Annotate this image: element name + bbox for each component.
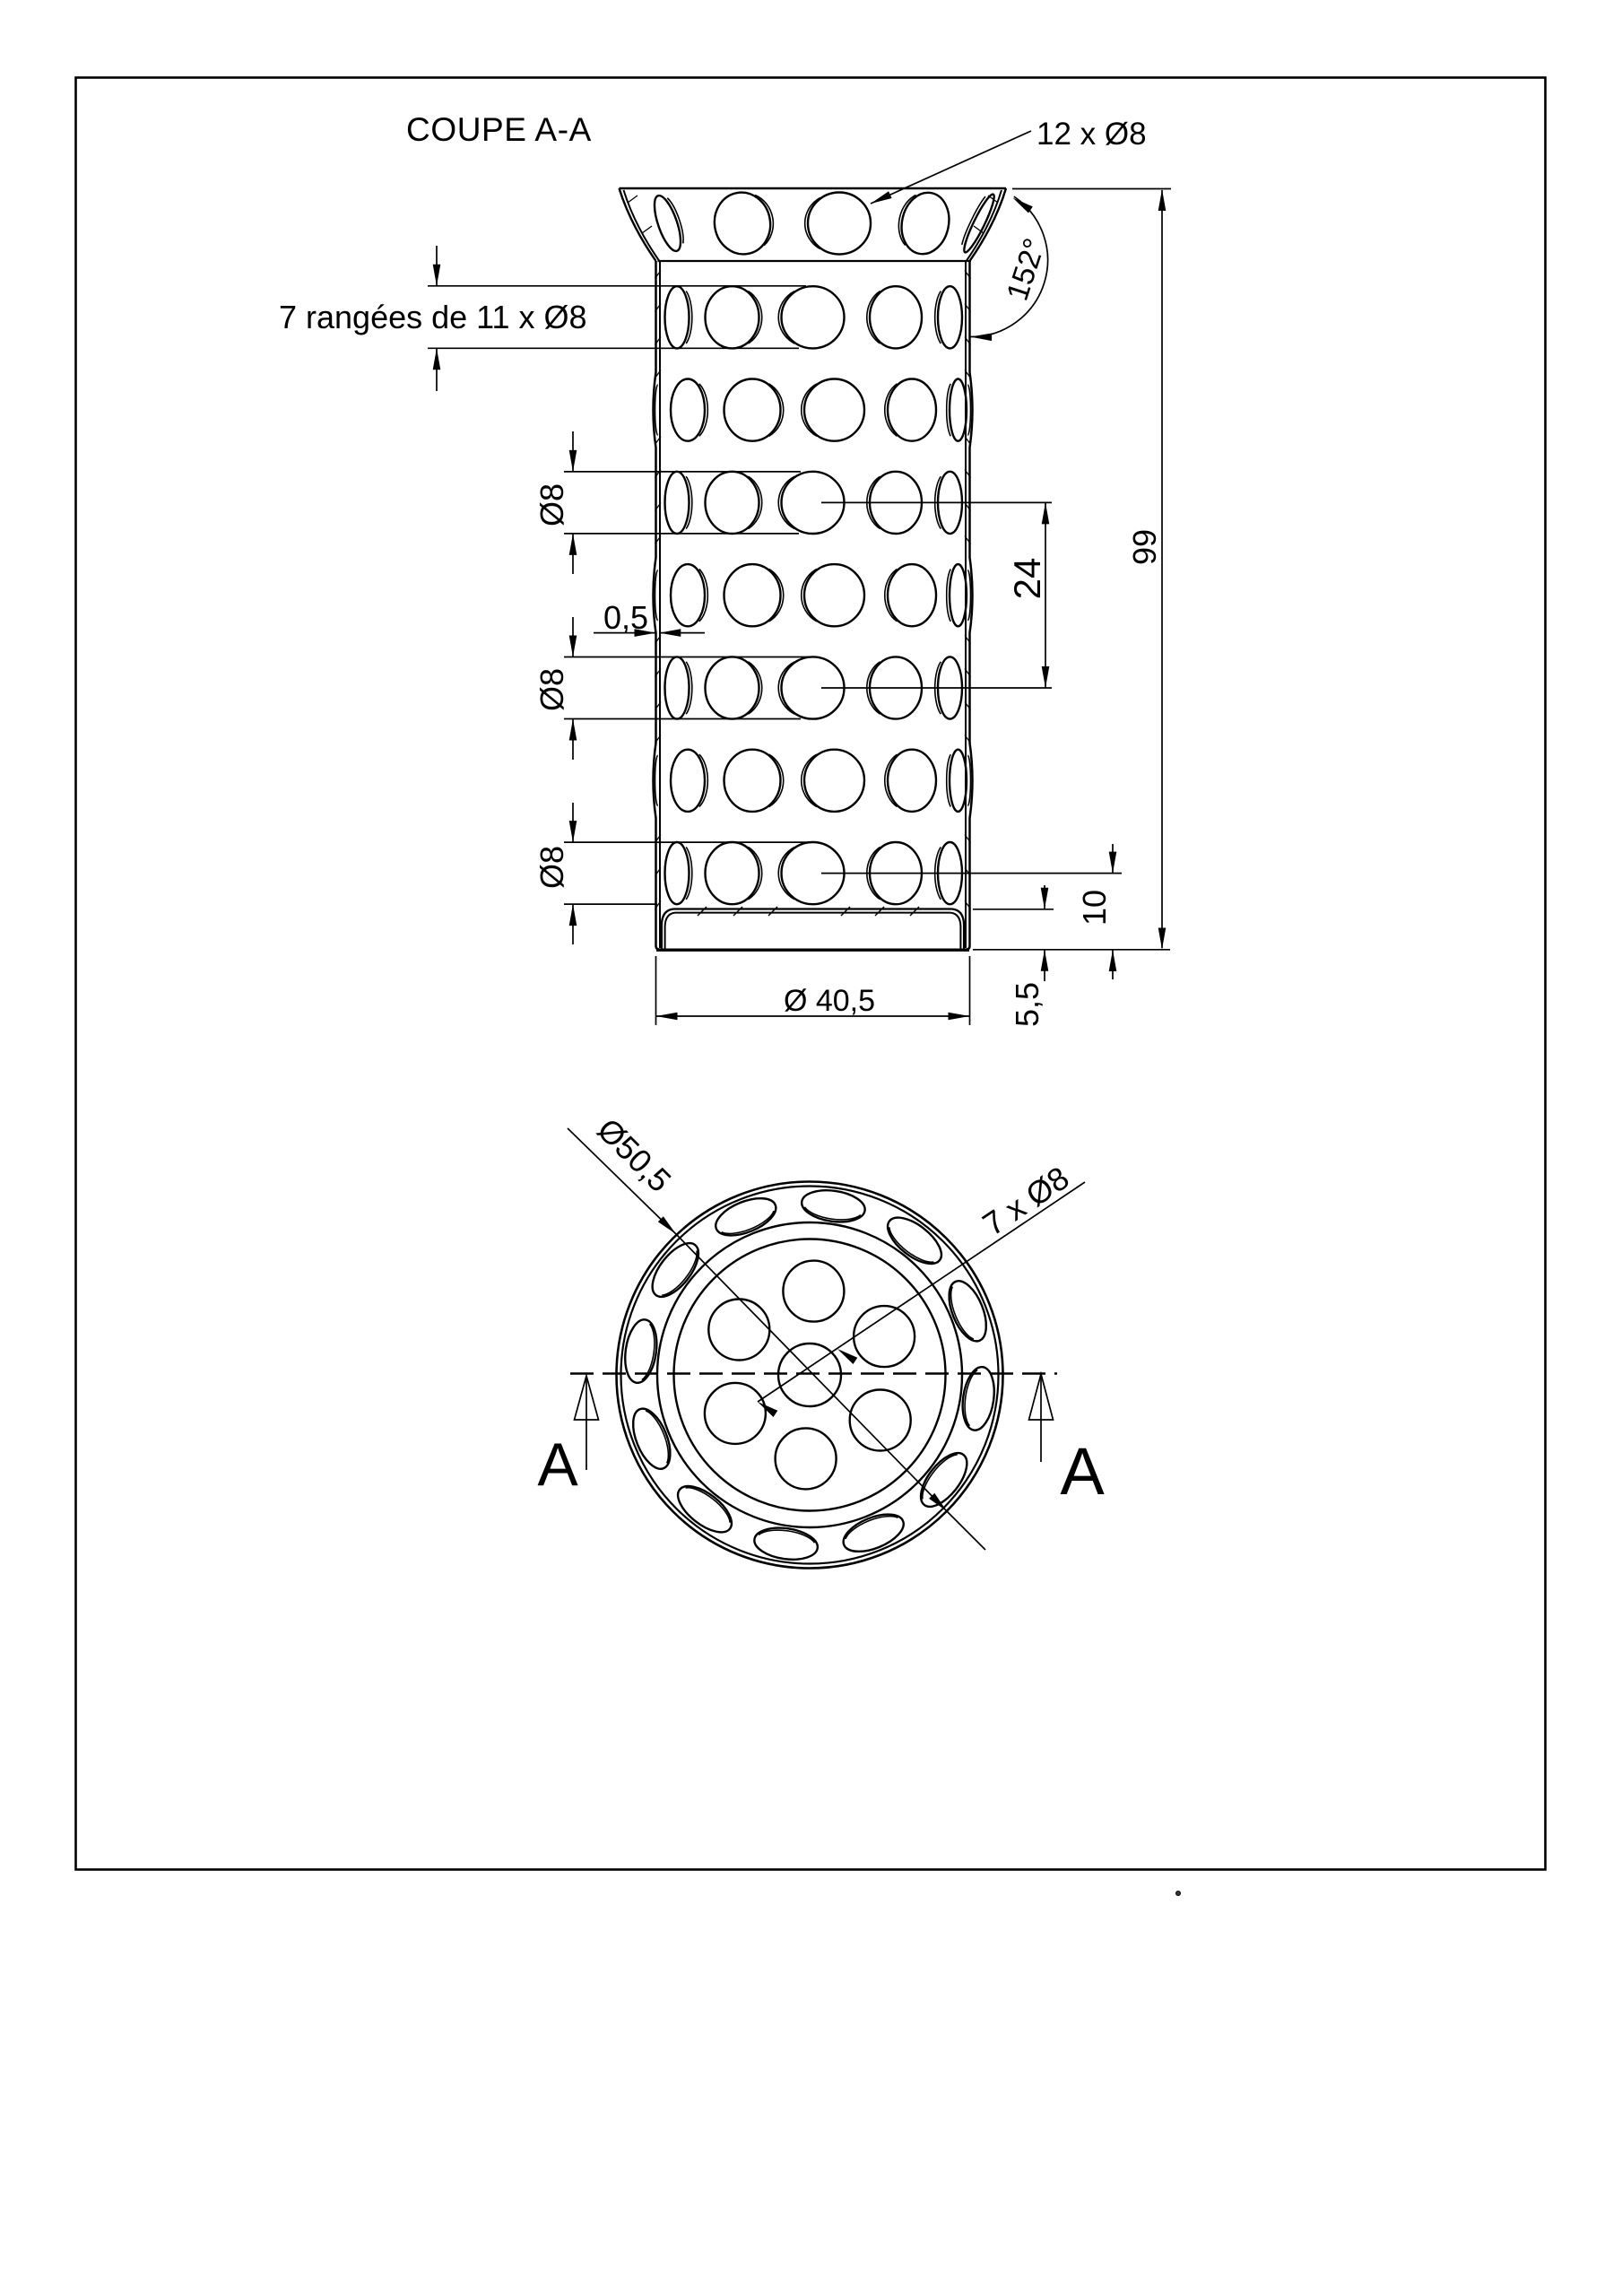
svg-text:Ø8: Ø8 <box>533 846 570 889</box>
svg-text:99: 99 <box>1126 529 1163 565</box>
svg-text:5,5: 5,5 <box>1009 982 1045 1027</box>
svg-text:12 x Ø8: 12 x Ø8 <box>1037 117 1147 152</box>
svg-text:Ø8: Ø8 <box>533 668 570 711</box>
svg-text:7 rangées de 11 x Ø8: 7 rangées de 11 x Ø8 <box>279 299 587 335</box>
svg-text:Ø8: Ø8 <box>533 483 570 526</box>
svg-text:Ø 40,5: Ø 40,5 <box>784 984 875 1018</box>
svg-text:COUPE A-A: COUPE A-A <box>406 111 592 148</box>
svg-text:10: 10 <box>1076 890 1113 926</box>
svg-text:A: A <box>1060 1434 1105 1509</box>
svg-text:24: 24 <box>1006 558 1048 600</box>
svg-text:A: A <box>537 1431 578 1499</box>
